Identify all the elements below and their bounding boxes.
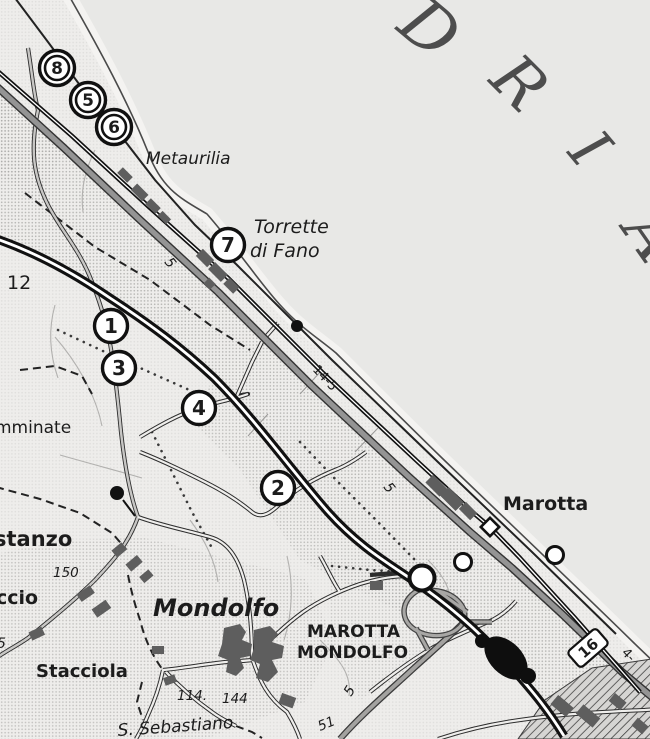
itinerary-marker-7: 7 bbox=[212, 229, 245, 262]
map-label-metaurilia: Metaurilia bbox=[146, 149, 231, 169]
marker-number: 3 bbox=[112, 356, 126, 380]
map-label-costanzo-part: stanzo bbox=[0, 527, 72, 551]
map-label-exit-line2: MONDOLFO bbox=[297, 643, 408, 663]
toll-gate-circle bbox=[455, 554, 472, 571]
map-label-mondolfo: Mondolfo bbox=[153, 594, 279, 622]
itinerary-marker-6: 6 bbox=[97, 110, 132, 145]
map-label-mminate-part: mminate bbox=[0, 418, 71, 438]
itinerary-marker-2: 2 bbox=[262, 472, 295, 505]
marker-number: 1 bbox=[104, 314, 118, 338]
map-label-d5-d: 5 bbox=[0, 636, 6, 652]
map-canvas: 16 85671342 DRIA MetauriliaTorrettedi Fa… bbox=[0, 0, 650, 739]
marker-number: 4 bbox=[192, 396, 206, 420]
map-label-ccio-part: ccio bbox=[0, 587, 38, 609]
map-label-h150: 150 bbox=[53, 565, 79, 581]
map-label-exit-line1: MAROTTA bbox=[307, 622, 401, 642]
map-label-marotta: Marotta bbox=[503, 493, 588, 515]
marker-number: 7 bbox=[221, 233, 235, 257]
map-label-h144: 144 bbox=[222, 691, 248, 707]
toll-gate-circle bbox=[410, 566, 435, 591]
spot-dot bbox=[110, 486, 124, 500]
map-label-torrette-line2: di Fano bbox=[250, 240, 320, 262]
spot-dot bbox=[291, 320, 303, 332]
itinerary-marker-5: 5 bbox=[71, 83, 106, 118]
marker-number: 5 bbox=[82, 91, 94, 111]
marker-number: 6 bbox=[108, 118, 120, 138]
itinerary-marker-1: 1 bbox=[95, 310, 128, 343]
toll-gate-circle bbox=[547, 547, 564, 564]
itinerary-marker-4: 4 bbox=[183, 392, 216, 425]
map-label-h12: 12 bbox=[7, 272, 31, 294]
marker-number: 8 bbox=[51, 59, 63, 79]
scanned-road-map: 16 85671342 DRIA MetauriliaTorrettedi Fa… bbox=[0, 0, 650, 739]
map-label-h114: 114. bbox=[177, 688, 207, 704]
itinerary-marker-8: 8 bbox=[40, 51, 75, 86]
itinerary-marker-3: 3 bbox=[103, 352, 136, 385]
map-label-torrette-line1: Torrette bbox=[254, 216, 329, 238]
map-label-stacciola: Stacciola bbox=[36, 661, 128, 682]
marker-number: 2 bbox=[271, 476, 285, 500]
